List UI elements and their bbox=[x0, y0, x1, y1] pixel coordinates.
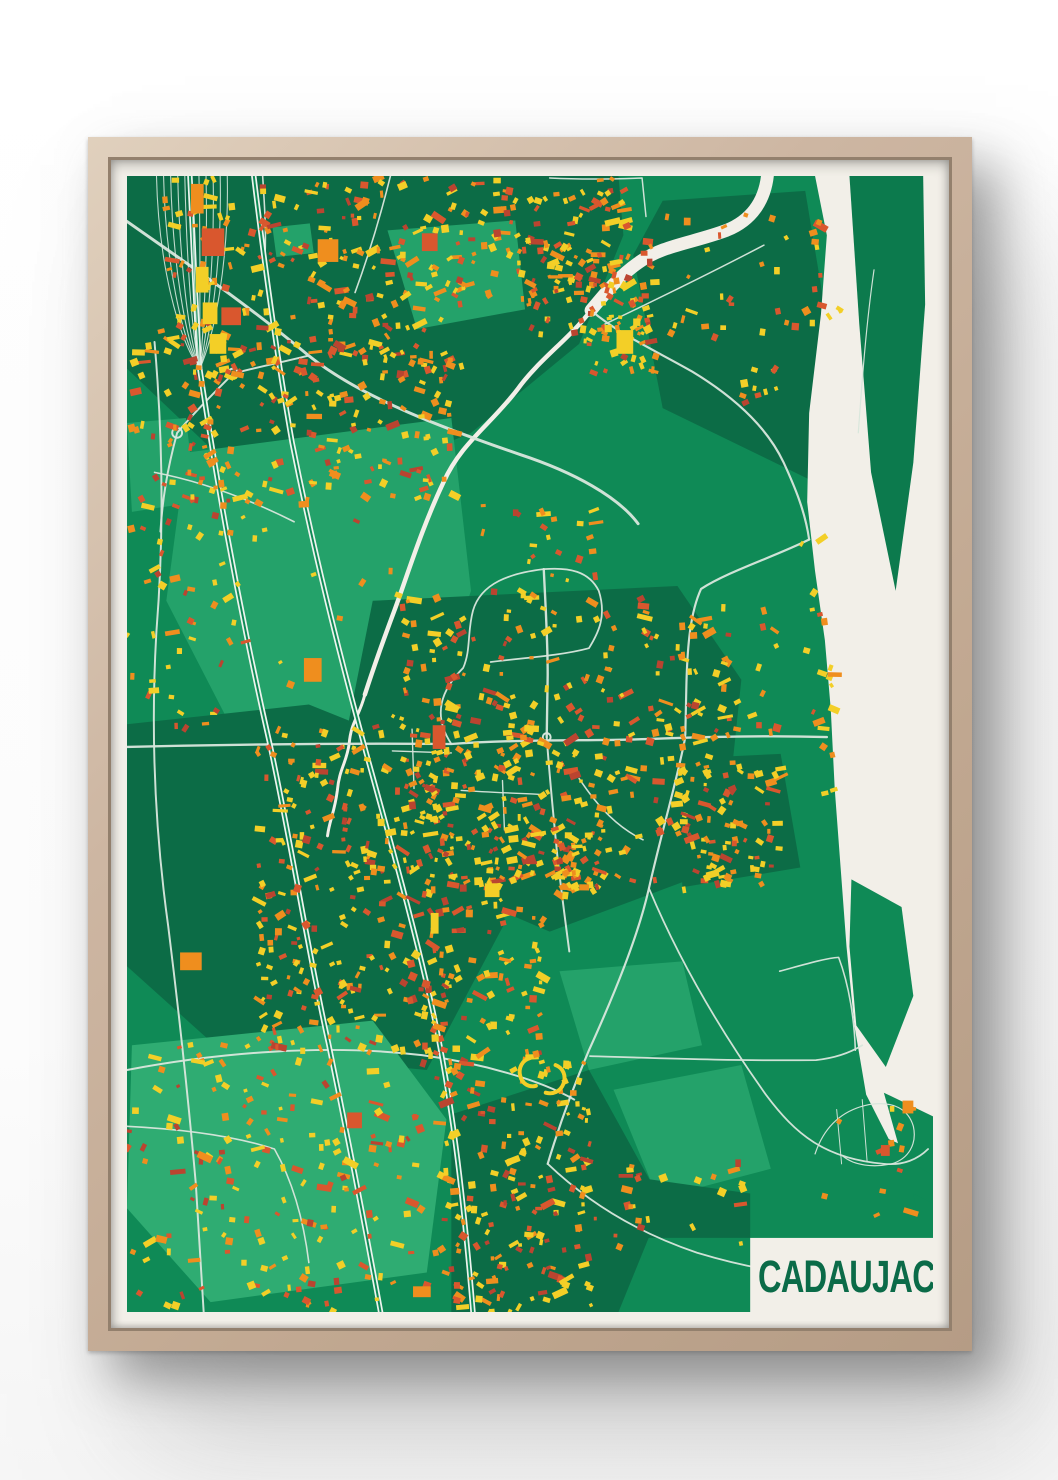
frame-inner-lip: CADAUJAC bbox=[108, 157, 952, 1331]
city-map: CADAUJAC bbox=[127, 176, 933, 1312]
poster: CADAUJAC bbox=[127, 176, 933, 1312]
poster-title: CADAUJAC bbox=[758, 1252, 933, 1303]
poster-mat: CADAUJAC bbox=[111, 160, 949, 1328]
title-block: CADAUJAC bbox=[750, 1238, 933, 1312]
poster-frame: CADAUJAC bbox=[88, 137, 972, 1351]
